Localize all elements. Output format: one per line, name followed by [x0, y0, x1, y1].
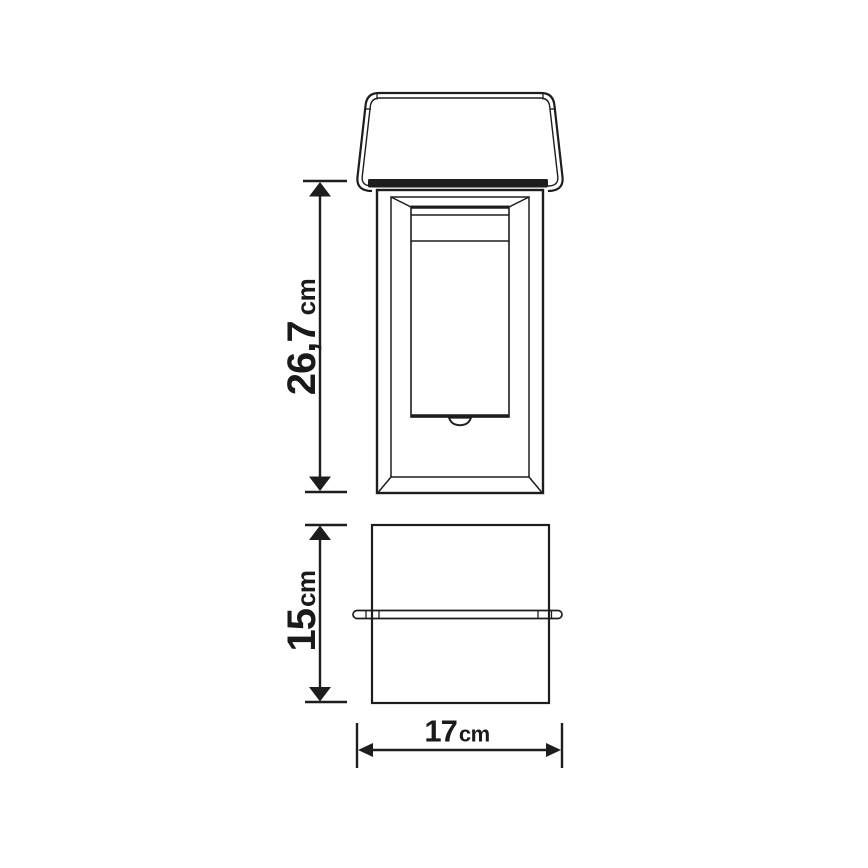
height-value: 26,7: [282, 321, 322, 395]
front-view: [357, 93, 562, 494]
handle-hood: [357, 93, 562, 192]
frame-miter-bottom-right: [529, 477, 542, 492]
hood-inner-contour: [362, 98, 558, 186]
width-arrow-left: [358, 743, 373, 757]
depth-arrow-down: [309, 687, 331, 702]
height-unit: cm: [293, 279, 319, 316]
height-dimension-label: 26,7 cm: [282, 279, 322, 395]
top-view: [353, 525, 562, 703]
depth-unit: cm: [293, 570, 319, 607]
width-unit: cm: [459, 724, 490, 746]
top-plate: [368, 179, 548, 188]
depth-dimension-label: 15 cm: [282, 570, 322, 651]
frame-miter-top-right: [509, 197, 529, 207]
glass-knob: [449, 418, 471, 426]
dimension-diagram: 26,7 cm 15 cm 17 cm: [0, 0, 868, 868]
frame-outer-edge: [377, 190, 543, 493]
handle-bar-outline: [353, 611, 562, 619]
body-frame: [377, 190, 543, 493]
depth-value: 15: [282, 609, 322, 652]
hood-outer-contour: [357, 93, 562, 191]
glass-panel: [411, 207, 509, 426]
handle-bar-top-view: [353, 611, 562, 619]
depth-arrow-up: [309, 526, 331, 541]
width-arrow-right: [546, 743, 561, 757]
top-view-body-outline: [372, 525, 549, 703]
frame-miter-bottom-left: [379, 477, 392, 492]
width-value: 17: [424, 716, 456, 747]
height-arrow-down: [309, 477, 331, 492]
glass-outline: [411, 207, 509, 418]
width-dimension-label: 17 cm: [424, 716, 489, 747]
height-arrow-up: [309, 182, 331, 197]
frame-miter-top-left: [391, 197, 411, 207]
